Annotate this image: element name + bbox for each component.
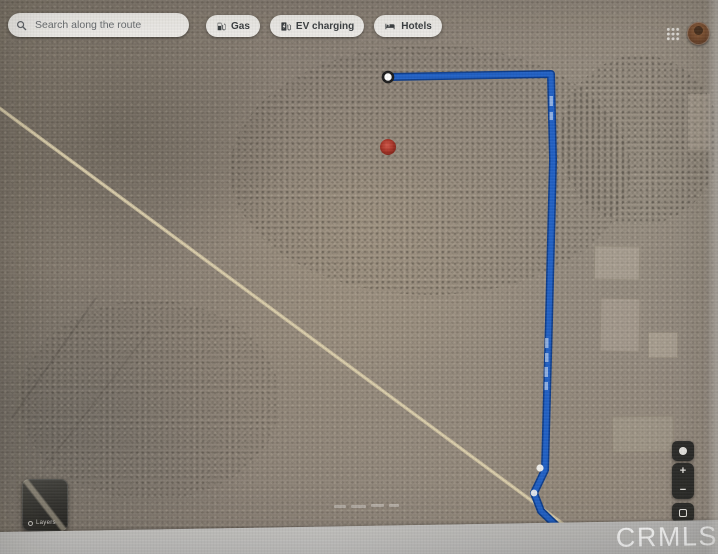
terrain-noise [0, 0, 718, 554]
ev-charger-icon [280, 21, 291, 32]
route-road-label [545, 96, 554, 390]
frame-icon [679, 509, 687, 517]
terrain-parcel [648, 332, 678, 358]
zoom-in-button[interactable]: + [680, 466, 686, 477]
gas-pump-icon [216, 21, 226, 32]
filter-label: EV charging [296, 21, 354, 32]
layers-toggle[interactable]: Layers [22, 479, 68, 531]
pegman-icon [679, 447, 687, 455]
layers-label-row: Layers [28, 520, 56, 526]
route-waypoint-dot [531, 490, 538, 497]
screen-scanlines [0, 0, 718, 554]
map-extra-control-button[interactable] [672, 503, 694, 522]
zoom-control: + − [672, 463, 694, 499]
photo-right-edge [706, 0, 718, 554]
map-attribution-text [334, 504, 399, 508]
photo-vignette [0, 0, 718, 554]
photo-bottom-band: CRMLS [0, 520, 718, 554]
filter-hotels-button[interactable]: Hotels [374, 15, 442, 37]
route-waypoint-dot [536, 464, 543, 471]
crmls-watermark: CRMLS [616, 521, 718, 554]
map-app-window: Gas EV charging Hotels Layers [0, 0, 718, 554]
layers-label: Layers [36, 520, 56, 526]
terrain-shrub-field [20, 300, 280, 500]
search-input[interactable] [33, 18, 181, 32]
route-path [388, 74, 588, 554]
route-start-marker[interactable] [383, 72, 393, 82]
property-marker-dot[interactable] [380, 139, 396, 155]
filter-label: Gas [231, 21, 250, 32]
account-avatar[interactable] [687, 22, 710, 45]
terrain-shrub-field [230, 45, 630, 295]
bed-icon [384, 21, 396, 32]
zoom-out-button[interactable]: − [680, 485, 686, 496]
layers-icon [28, 521, 33, 526]
map-canvas[interactable] [0, 0, 718, 554]
road-line [0, 104, 612, 554]
terrain-parcel [688, 94, 710, 150]
search-icon [16, 20, 27, 31]
terrain-noise [0, 0, 718, 554]
route-filter-bar: Gas EV charging Hotels [206, 15, 442, 37]
pegman-button[interactable] [672, 441, 694, 461]
terrain-parcel [600, 298, 641, 353]
google-apps-grid-icon[interactable] [666, 27, 680, 41]
search-bar[interactable] [8, 13, 189, 37]
filter-ev-charging-button[interactable]: EV charging [270, 15, 364, 37]
filter-label: Hotels [401, 21, 432, 32]
terrain-parcel [612, 415, 675, 452]
filter-gas-button[interactable]: Gas [206, 15, 260, 37]
terrain-shrub-field [560, 55, 718, 225]
terrain-parcel [594, 246, 641, 281]
